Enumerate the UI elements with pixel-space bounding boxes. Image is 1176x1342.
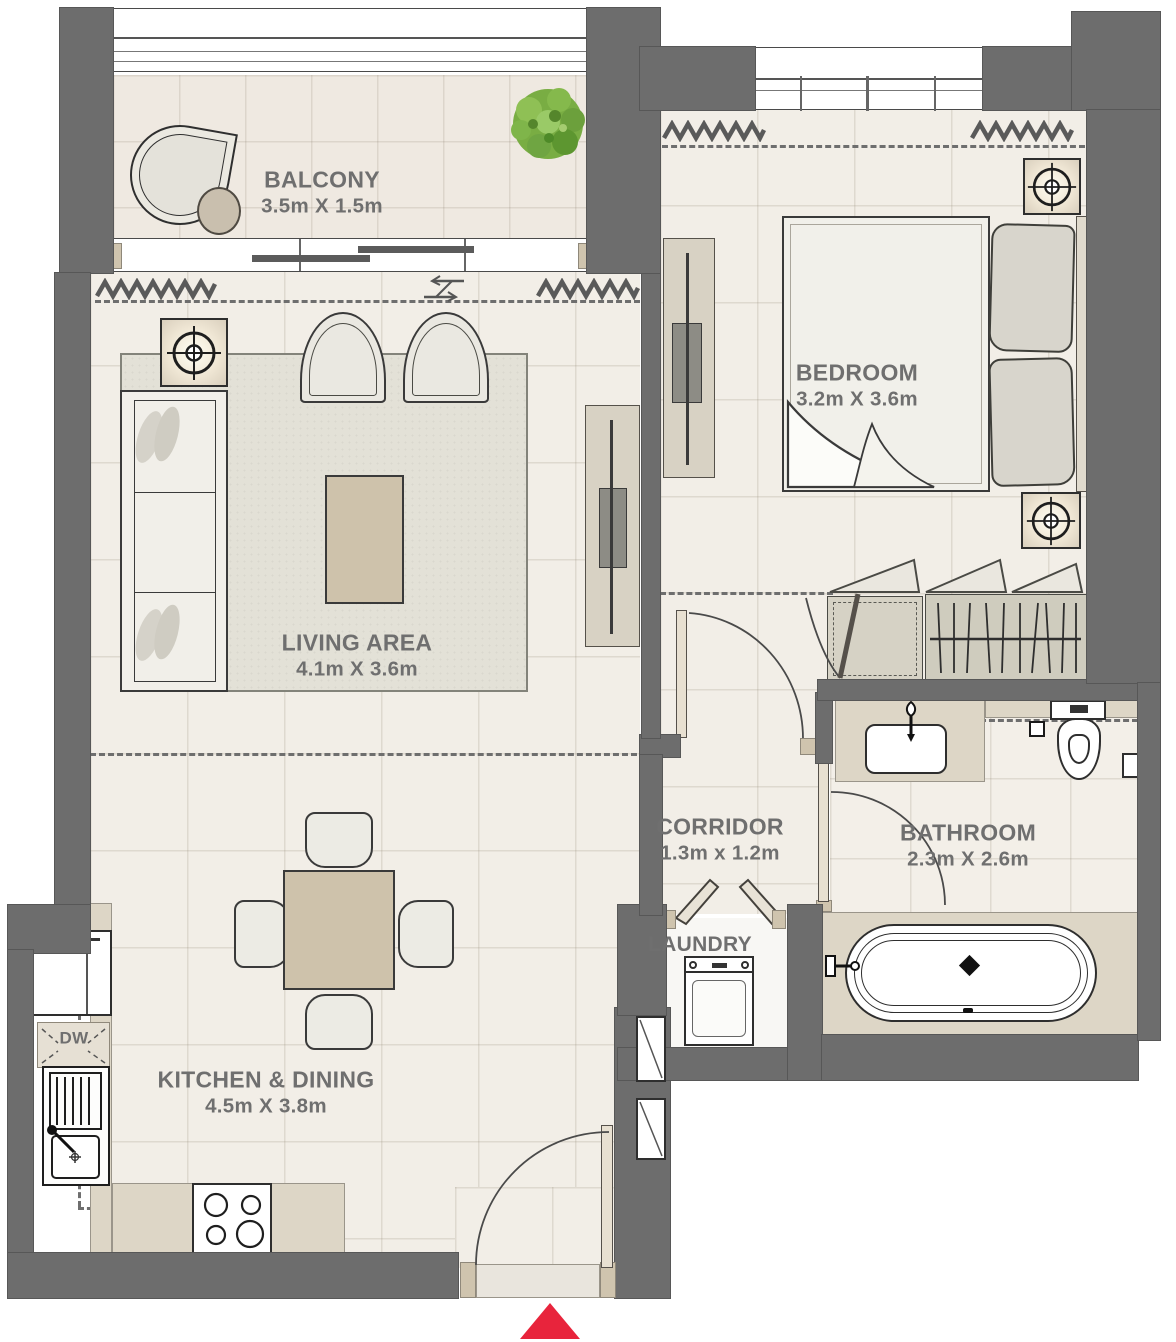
- wall: [1138, 683, 1160, 1040]
- wall: [640, 47, 755, 110]
- balcony-sliding-door: [113, 238, 587, 272]
- sink-drainer-icon: [44, 1068, 107, 1183]
- dining-chair-right: [398, 900, 454, 968]
- bed-headboard: [1076, 216, 1087, 492]
- wall: [818, 680, 1160, 700]
- light-crosshair-icon: [1027, 162, 1077, 212]
- wall: [788, 905, 822, 1080]
- wall: [618, 905, 666, 1015]
- service-duct: [636, 1016, 666, 1082]
- wall: [55, 273, 90, 908]
- tv-unit-living: [585, 405, 640, 647]
- living-corridor-door-leaf: [676, 610, 687, 738]
- sofa: [120, 390, 228, 692]
- service-duct: [636, 1098, 666, 1160]
- coffee-table: [325, 475, 404, 604]
- dining-chair-bottom: [305, 994, 373, 1050]
- bathroom-door-leaf: [818, 762, 829, 902]
- zigzag-curtain-living-right: [536, 278, 640, 300]
- wall: [1072, 12, 1160, 110]
- room-label-bedroom: BEDROOM3.2m X 3.6m: [796, 358, 918, 411]
- bed-blanket-fold: [784, 398, 954, 491]
- wall: [8, 1253, 458, 1298]
- door-jamb: [772, 910, 786, 929]
- light-crosshair-icon: [1026, 496, 1076, 546]
- ceiling-light-bed-head: [1023, 158, 1081, 215]
- ceiling-light-bed-foot: [1021, 492, 1081, 549]
- room-label-laundry: LAUNDRY: [648, 932, 752, 958]
- washing-machine: [684, 956, 754, 1046]
- bedroom-window: [755, 47, 983, 110]
- entrance-arrow-icon: [520, 1303, 580, 1339]
- bathtub-drain: [963, 1008, 973, 1013]
- door-jamb: [460, 1262, 476, 1298]
- wall: [822, 1035, 1138, 1080]
- bed-pillow: [988, 223, 1075, 353]
- hanging-clothes-icon: [926, 595, 1085, 680]
- wall: [1087, 110, 1160, 683]
- dishwasher-label: DW: [60, 1029, 89, 1050]
- bulkhead-line-bedroom: [662, 145, 1085, 148]
- plant-icon: [503, 78, 593, 170]
- zigzag-curtain-living-left: [95, 278, 217, 300]
- dining-table: [283, 870, 395, 990]
- slider-panel: [252, 255, 370, 262]
- wall: [983, 47, 1072, 110]
- balcony-side-table: [197, 187, 241, 235]
- bulkhead-line-living: [95, 300, 640, 303]
- wall: [8, 905, 90, 953]
- dishwasher: DW: [37, 1022, 110, 1068]
- floor-plan: DW: [0, 0, 1176, 1342]
- zigzag-curtain-bedroom-right: [970, 120, 1074, 142]
- dining-chair-top: [305, 812, 373, 868]
- balcony-railing: [113, 8, 587, 72]
- stove: [192, 1183, 272, 1255]
- bed-pillow: [988, 357, 1075, 487]
- wall: [816, 693, 832, 763]
- ceiling-light-living: [160, 318, 228, 387]
- sink-tap-icon: [900, 700, 922, 744]
- slider-panel: [358, 246, 474, 253]
- wall: [8, 950, 33, 1255]
- room-label-corridor: CORRIDOR1.3m x 1.2m: [656, 812, 784, 865]
- stove-burners-icon: [194, 1185, 270, 1253]
- room-label-balcony: BALCONY3.5m X 1.5m: [261, 165, 383, 218]
- kitchen-sink-unit: [42, 1066, 110, 1186]
- room-label-bathroom: BATHROOM2.3m X 2.6m: [900, 818, 1036, 871]
- room-label-kitchen: KITCHEN & DINING4.5m X 3.8m: [158, 1065, 375, 1118]
- living-corridor-door-arc: [687, 611, 805, 741]
- room-label-living: LIVING AREA4.1m X 3.6m: [282, 628, 433, 681]
- entrance-door-arc: [475, 1130, 611, 1267]
- entrance-threshold: [476, 1264, 600, 1298]
- wardrobe-closet: [925, 594, 1087, 682]
- partition-line-living-kitchen: [90, 753, 637, 756]
- zigzag-curtain-bedroom-left: [662, 120, 766, 142]
- bedroom-door: [798, 588, 866, 684]
- wall: [642, 268, 660, 738]
- toilet-tank: [1050, 700, 1106, 720]
- bathtub-tap-icon: [824, 946, 864, 986]
- light-crosshair-icon: [166, 325, 222, 381]
- wall: [640, 735, 680, 757]
- wall: [60, 8, 113, 273]
- floor-drain: [1029, 721, 1045, 737]
- tv-unit-bedroom: [663, 238, 715, 478]
- toilet-paper-holder: [1122, 753, 1139, 778]
- dining-chair-left: [234, 900, 290, 968]
- sliding-door-arrows-icon: [420, 272, 468, 306]
